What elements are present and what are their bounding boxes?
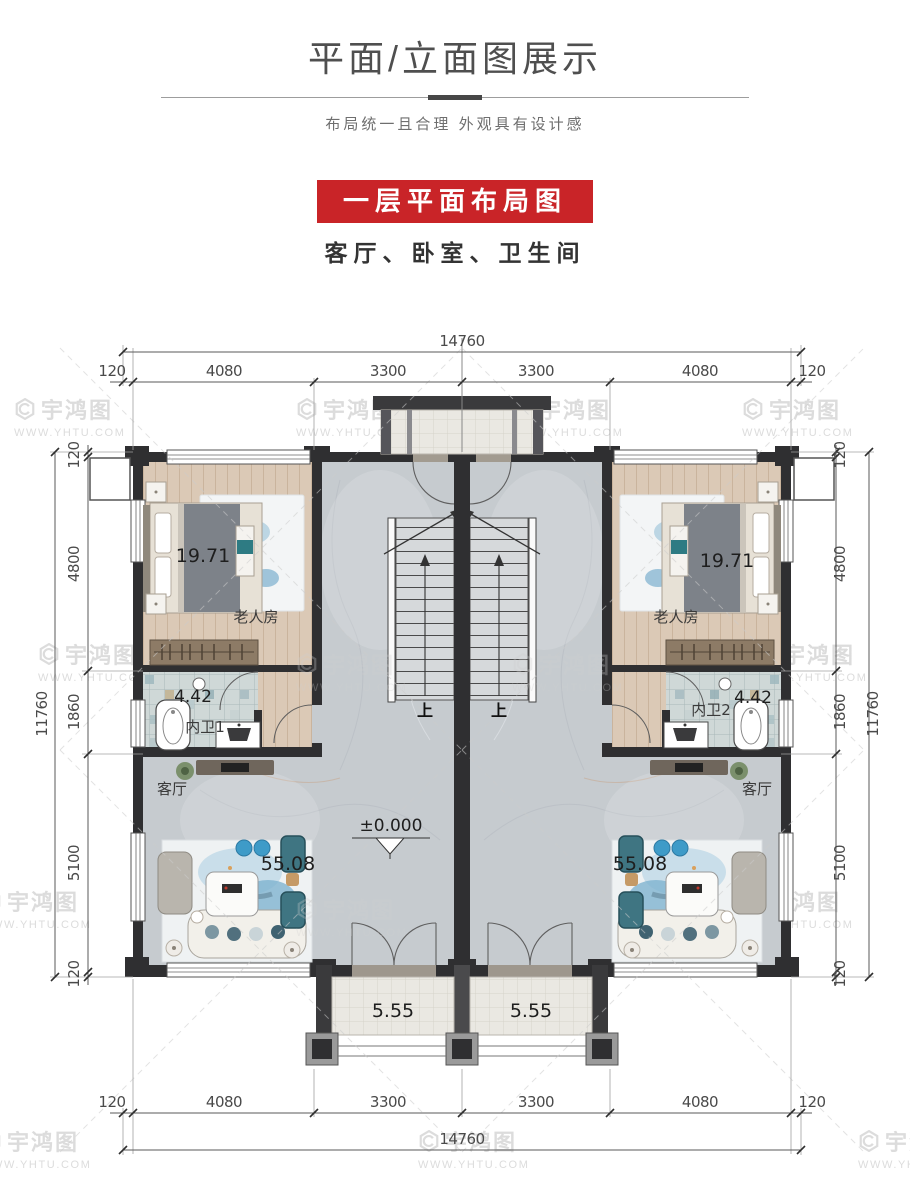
page-subtitle: 布局统一且合理 外观具有设计感 xyxy=(0,113,910,134)
dimension-right: 120 4800 1860 5100 120 11760 xyxy=(781,441,882,987)
room-label-bath-right: 内卫2 xyxy=(691,701,731,719)
dim: 4800 xyxy=(831,546,849,582)
dim: 3300 xyxy=(518,1093,554,1111)
stair-up-left: 上 xyxy=(417,701,433,720)
dimension-left: 120 4800 1860 5100 120 11760 xyxy=(33,441,143,987)
dim: 120 xyxy=(798,1093,825,1111)
yhtu-logo-icon xyxy=(512,653,534,675)
page: { "header": { "title": "平面/立面图展示", "subt… xyxy=(0,0,910,1178)
watermark-brand: 宇鸿图 xyxy=(539,648,611,680)
level-label: ±0.000 xyxy=(360,816,423,836)
area-bath-right: 4.42 xyxy=(734,688,772,708)
area-bath-left: 4.42 xyxy=(174,687,212,707)
dim: 3300 xyxy=(518,362,554,380)
watermark: 宇鸿图WWW.YHTU.COM xyxy=(296,893,407,939)
banner: 一层平面布局图 xyxy=(317,180,593,223)
area-bedroom-right: 19.71 xyxy=(700,550,754,572)
area-bedroom-left: 19.71 xyxy=(176,545,230,567)
watermark-url: WWW.YHTU.COM xyxy=(296,682,407,694)
wardrobe xyxy=(150,640,258,665)
dim-bottom-total: 14760 xyxy=(439,1130,484,1148)
watermark-url: WWW.YHTU.COM xyxy=(296,927,407,939)
header: 平面/立面图展示 布局统一且合理 外观具有设计感 一层平面布局图 客厅、卧室、卫… xyxy=(0,0,910,268)
dim: 4800 xyxy=(65,546,83,582)
dim-top-total: 14760 xyxy=(439,332,484,350)
area-living-right: 55.08 xyxy=(613,853,667,875)
dim: 120 xyxy=(65,441,83,468)
watermark-brand: 宇鸿图 xyxy=(323,648,395,680)
floor-plan: 14760 120 4080 3300 3300 4080 120 120 40… xyxy=(0,330,910,1178)
room-label-living-left: 客厅 xyxy=(157,780,187,798)
dim: 120 xyxy=(98,1093,125,1111)
watermark: 宇鸿图WWW.YHTU.COM xyxy=(296,648,407,694)
dim: 5100 xyxy=(831,845,849,881)
dim: 4080 xyxy=(682,1093,718,1111)
dim: 5100 xyxy=(65,845,83,881)
dim: 120 xyxy=(831,441,849,468)
room-label-bedroom-right: 老人房 xyxy=(653,608,698,626)
yhtu-logo-icon xyxy=(296,898,318,920)
dim: 1860 xyxy=(831,694,849,730)
dim: 120 xyxy=(831,960,849,987)
dim: 1860 xyxy=(65,694,83,730)
dim: 120 xyxy=(65,960,83,987)
dim: 4080 xyxy=(206,362,242,380)
yhtu-logo-icon xyxy=(296,653,318,675)
banner-caption: 客厅、卧室、卫生间 xyxy=(0,234,910,268)
watermark: 宇鸿图WWW.YHTU.COM xyxy=(512,648,623,694)
dim: 4080 xyxy=(682,362,718,380)
room-label-bedroom-left: 老人房 xyxy=(233,608,278,626)
stair-up-right: 上 xyxy=(491,701,507,720)
unit-right xyxy=(462,446,834,977)
area-living-left: 55.08 xyxy=(261,853,315,875)
dim: 3300 xyxy=(370,1093,406,1111)
area-porch-left: 5.55 xyxy=(372,1000,414,1022)
exterior-platform xyxy=(90,458,130,500)
page-title: 平面/立面图展示 xyxy=(0,0,910,82)
dim: 3300 xyxy=(370,362,406,380)
area-porch-right: 5.55 xyxy=(510,1000,552,1022)
room-label-living-right: 客厅 xyxy=(742,780,772,798)
dim: 120 xyxy=(98,362,125,380)
dim: 4080 xyxy=(206,1093,242,1111)
watermark-brand: 宇鸿图 xyxy=(323,893,395,925)
rear-porch xyxy=(373,338,551,454)
watermark-url: WWW.YHTU.COM xyxy=(512,682,623,694)
dim-left-total: 11760 xyxy=(33,691,51,736)
title-divider xyxy=(161,97,749,98)
dim: 120 xyxy=(798,362,825,380)
room-label-bath-left: 内卫1 xyxy=(185,718,225,736)
dim-right-total: 11760 xyxy=(864,691,882,736)
